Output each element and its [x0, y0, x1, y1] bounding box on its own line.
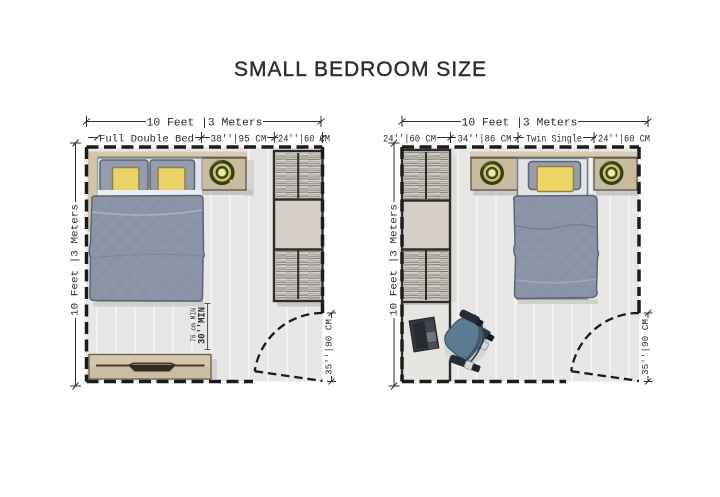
svg-text:Twin Single: Twin Single — [526, 133, 582, 145]
svg-text:35''|90 CM: 35''|90 CM — [323, 319, 334, 375]
svg-text:76 cm MIN: 76 cm MIN — [191, 308, 199, 342]
svg-text:34''|86 CM: 34''|86 CM — [458, 133, 512, 145]
svg-text:10 Feet |3 Meters: 10 Feet |3 Meters — [70, 204, 82, 316]
svg-text:10 Feet |3 Meters: 10 Feet |3 Meters — [147, 118, 263, 130]
svg-text:SMALL BEDROOM SIZE: SMALL BEDROOM SIZE — [234, 58, 486, 81]
svg-text:10 Feet |3 Meters: 10 Feet |3 Meters — [389, 204, 401, 316]
svg-text:Full Double Bed: Full Double Bed — [99, 133, 194, 145]
svg-text:24''|60 CM: 24''|60 CM — [598, 133, 650, 145]
svg-text:35''|90 CM: 35''|90 CM — [640, 319, 651, 375]
svg-text:38''|95 CM: 38''|95 CM — [211, 133, 267, 145]
svg-text:10 Feet |3 Meters: 10 Feet |3 Meters — [462, 118, 578, 130]
svg-text:24''|60 CM: 24''|60 CM — [278, 133, 330, 145]
